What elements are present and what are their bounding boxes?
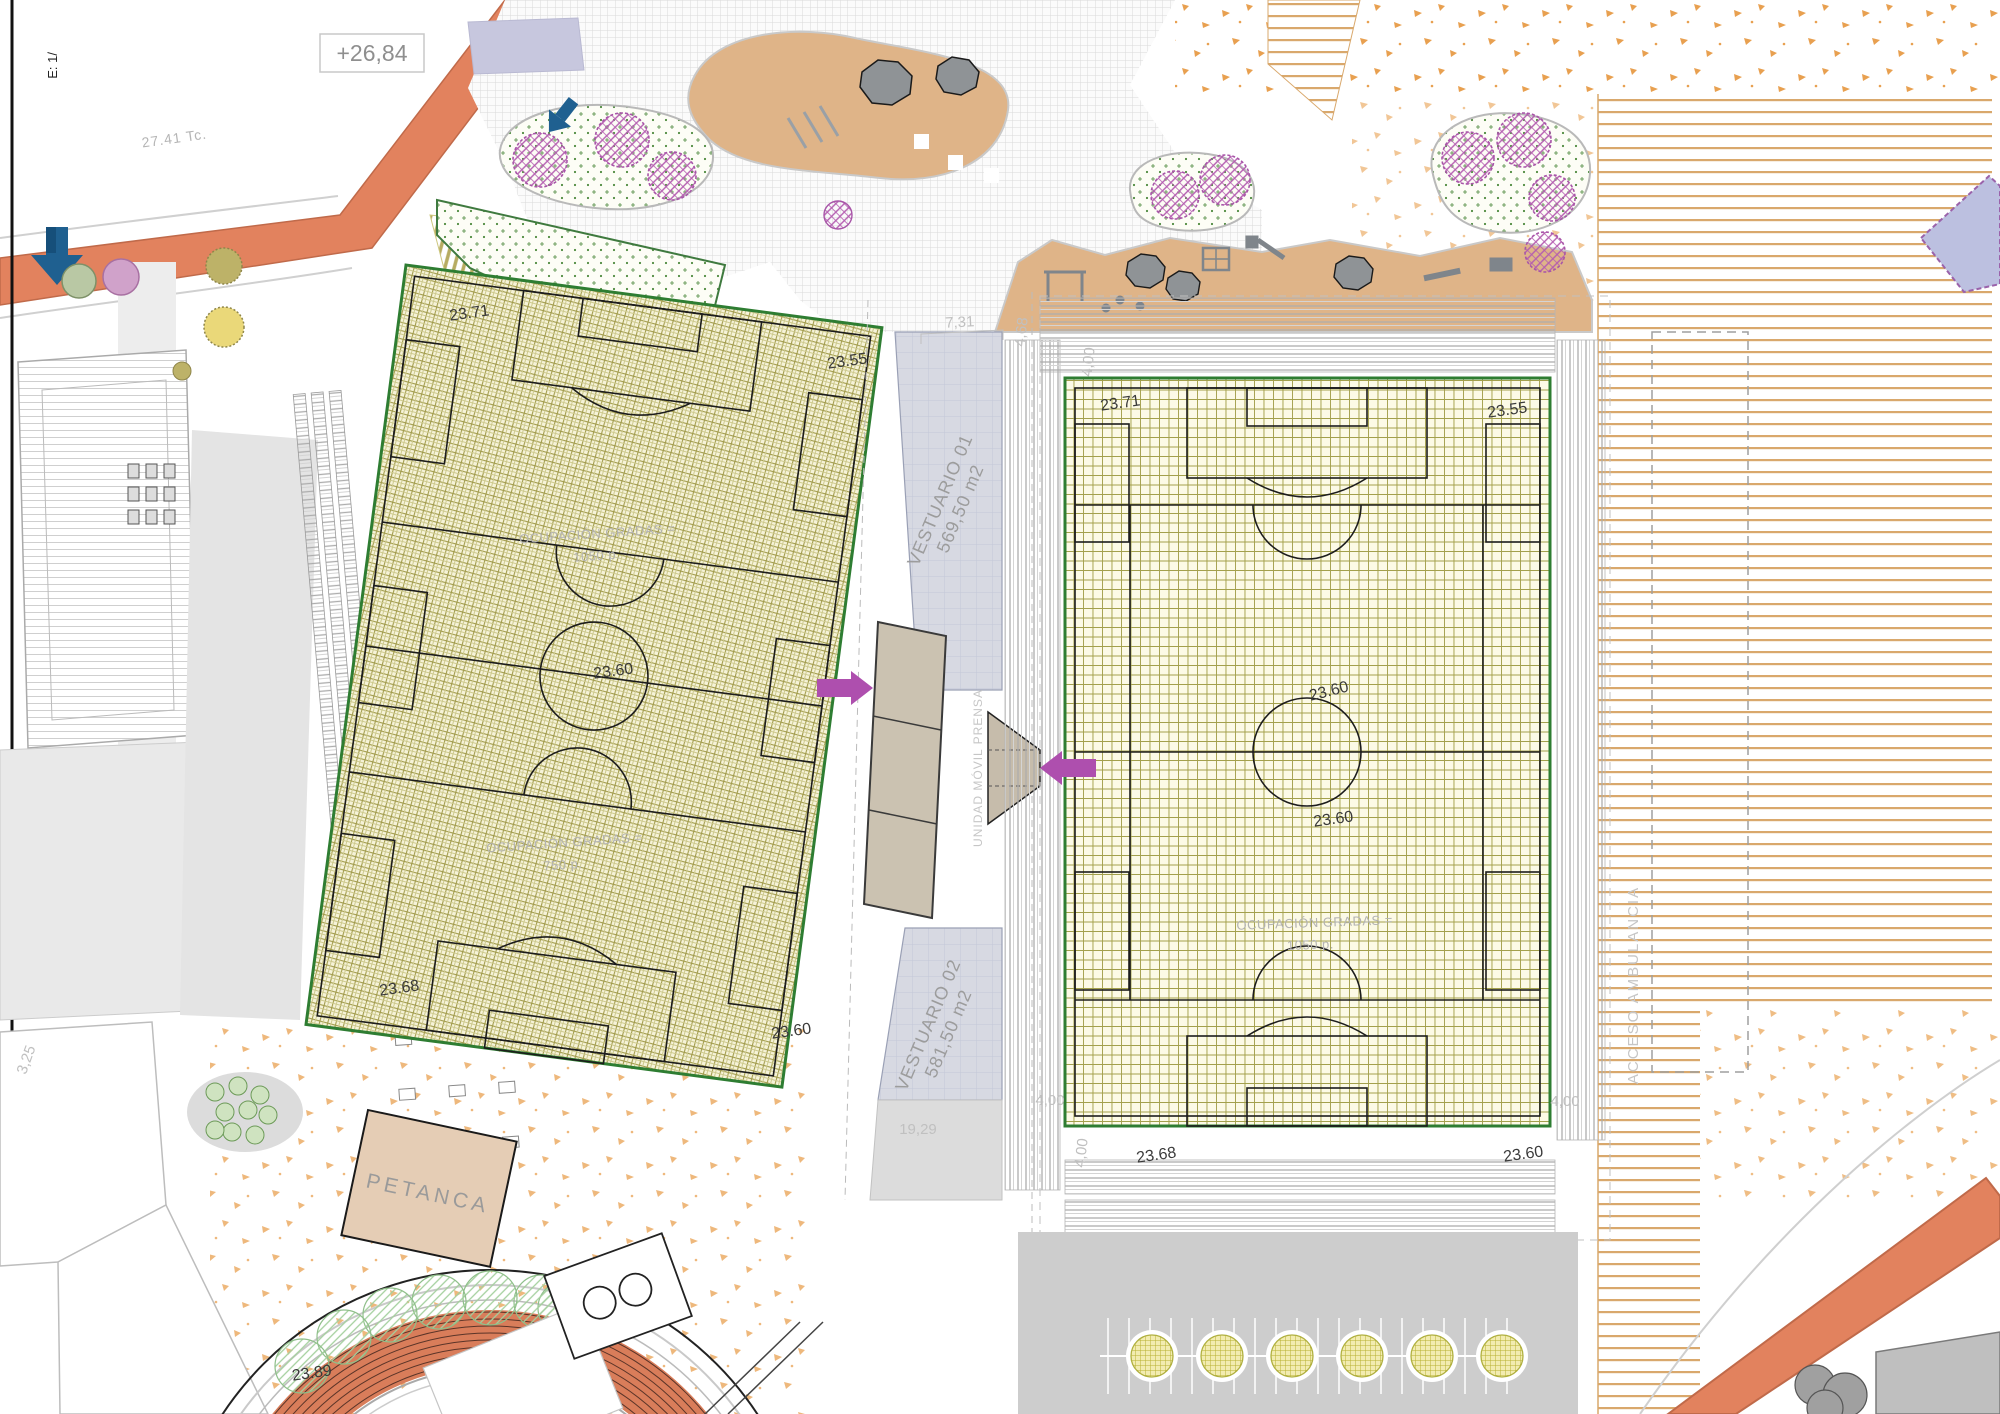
olive-tree-icon bbox=[204, 307, 244, 347]
purple-tree-icon bbox=[648, 152, 696, 200]
purple-tree-icon bbox=[824, 201, 852, 229]
gradas-east-band bbox=[1557, 340, 1605, 1140]
site-plan-canvas: PETANCA bbox=[0, 0, 2000, 1414]
vestuario-02-apron bbox=[870, 1100, 1002, 1200]
dimension-label: 4,00 bbox=[1550, 1093, 1579, 1110]
central-service-building bbox=[864, 622, 946, 918]
pink-tree-icon bbox=[103, 259, 139, 295]
east-football-field bbox=[1065, 378, 1550, 1126]
dimension-label: 7,31 bbox=[945, 313, 975, 332]
scale-note: E: 1/ bbox=[45, 52, 60, 79]
occupancy-line2: 1050 p. bbox=[1287, 936, 1334, 953]
green-tree-icon bbox=[62, 264, 96, 298]
olive-tree-icon bbox=[206, 248, 242, 284]
boulder-icon bbox=[1126, 254, 1165, 288]
parking-lot bbox=[1018, 1232, 1578, 1414]
existing-pavilion bbox=[18, 350, 196, 748]
gradas-south-band-2 bbox=[1065, 1200, 1555, 1234]
dimension-label: 4,00 bbox=[1078, 346, 1098, 377]
dimension-label: 4,00 bbox=[1035, 1092, 1064, 1109]
boulder-icon bbox=[1334, 256, 1373, 290]
dimension-label: 4,00 bbox=[1071, 1137, 1091, 1168]
existing-building-south bbox=[0, 742, 210, 1020]
ambulance-access-label: ACCESO AMBULANCIA bbox=[1625, 886, 1642, 1084]
gradas-north-band bbox=[1040, 298, 1555, 372]
purple-tree-icon bbox=[1525, 232, 1565, 272]
occupancy-line2: 750 p. bbox=[543, 856, 583, 874]
level-box-value: +26,84 bbox=[337, 40, 408, 66]
speckled-ground-bottom-right bbox=[1700, 1010, 2000, 1200]
purple-tree-icon bbox=[1442, 132, 1494, 184]
dimension-label: 19,29 bbox=[899, 1121, 937, 1138]
purple-tree-icon bbox=[1497, 113, 1551, 167]
site-plan-svg: PETANCA bbox=[0, 0, 2000, 1414]
path-west-of-field bbox=[180, 430, 318, 1020]
olive-tree-icon bbox=[173, 362, 191, 380]
press-unit-label: UNIDAD MÓVIL PRENSA bbox=[970, 689, 985, 847]
purple-tree-icon bbox=[1200, 155, 1250, 205]
purple-tree-icon bbox=[1529, 175, 1575, 221]
dimension-label: 4,68 bbox=[1011, 316, 1031, 347]
purple-tree-icon bbox=[513, 133, 567, 187]
bench-grid-small bbox=[128, 464, 175, 524]
lavender-parcel-top bbox=[468, 18, 584, 74]
purple-tree-icon bbox=[595, 113, 649, 167]
purple-tree-icon bbox=[1151, 171, 1199, 219]
